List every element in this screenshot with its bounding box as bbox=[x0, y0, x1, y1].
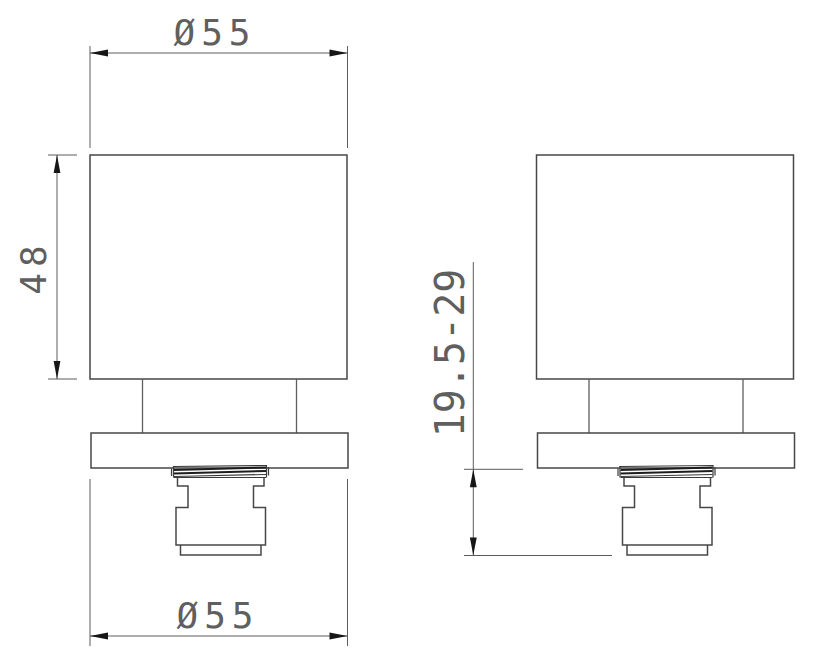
dimension-label-height: 48 bbox=[13, 239, 54, 294]
arrowhead-left bbox=[90, 633, 108, 640]
front-view bbox=[90, 155, 348, 555]
dimension-bottom-diameter: Ø55 bbox=[90, 479, 348, 646]
arrowhead-top bbox=[54, 155, 61, 173]
side-view-geometry bbox=[537, 155, 795, 555]
arrowhead-right bbox=[330, 633, 348, 640]
arrowhead-left bbox=[90, 50, 108, 57]
dimension-label-depth-range: 19.5-29 bbox=[427, 269, 473, 438]
dimension-label-top-diameter: Ø55 bbox=[173, 12, 256, 53]
dimension-height: 48 bbox=[13, 155, 77, 379]
side-view bbox=[537, 155, 795, 555]
arrowhead-down bbox=[470, 538, 477, 556]
technical-drawing-canvas: Ø55 48 Ø55 19.5-29 bbox=[0, 0, 817, 660]
arrowhead-right bbox=[330, 50, 348, 57]
dimension-top-diameter: Ø55 bbox=[90, 12, 348, 148]
drawing-sheet: Ø55 48 Ø55 19.5-29 bbox=[0, 0, 817, 660]
front-view-geometry bbox=[90, 155, 348, 555]
dimension-depth-range: 19.5-29 bbox=[427, 262, 612, 556]
dimension-label-bottom-diameter: Ø55 bbox=[176, 595, 259, 636]
arrowhead-up bbox=[470, 469, 477, 487]
arrowhead-bottom bbox=[54, 361, 61, 379]
